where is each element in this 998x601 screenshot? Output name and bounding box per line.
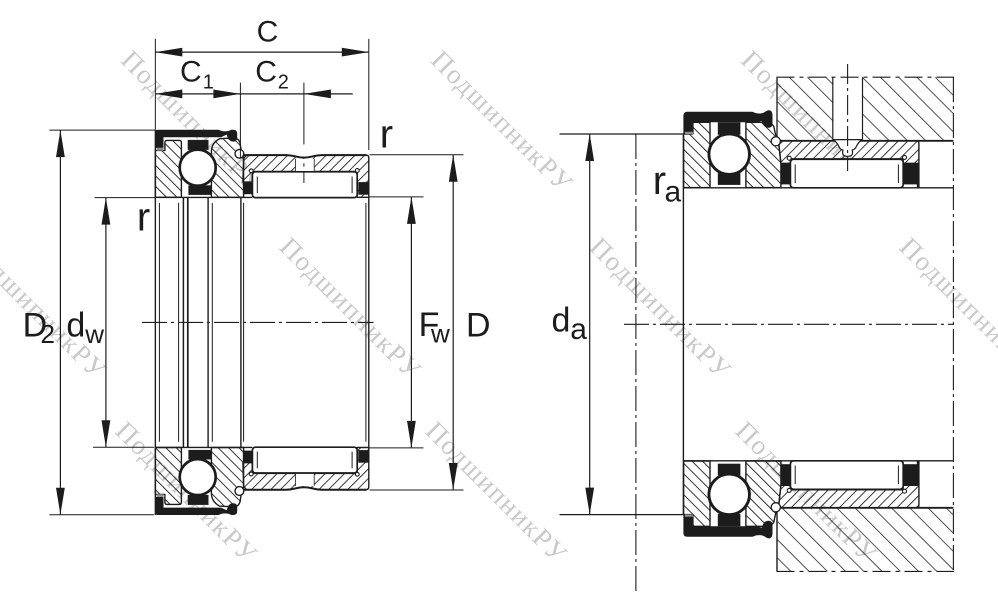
svg-text:w: w: [84, 319, 104, 349]
svg-text:d: d: [552, 302, 571, 340]
svg-text:1: 1: [203, 71, 214, 93]
svg-text:2: 2: [41, 319, 55, 349]
svg-text:r: r: [137, 196, 150, 240]
svg-text:C: C: [255, 56, 277, 89]
svg-text:2: 2: [278, 71, 289, 93]
svg-text:d: d: [66, 306, 85, 344]
svg-text:a: a: [665, 176, 682, 209]
svg-text:r: r: [380, 113, 393, 157]
svg-text:a: a: [570, 313, 587, 346]
svg-text:C: C: [180, 56, 202, 89]
svg-text:w: w: [430, 319, 450, 349]
svg-text:C: C: [257, 16, 279, 49]
svg-text:D: D: [466, 306, 491, 344]
